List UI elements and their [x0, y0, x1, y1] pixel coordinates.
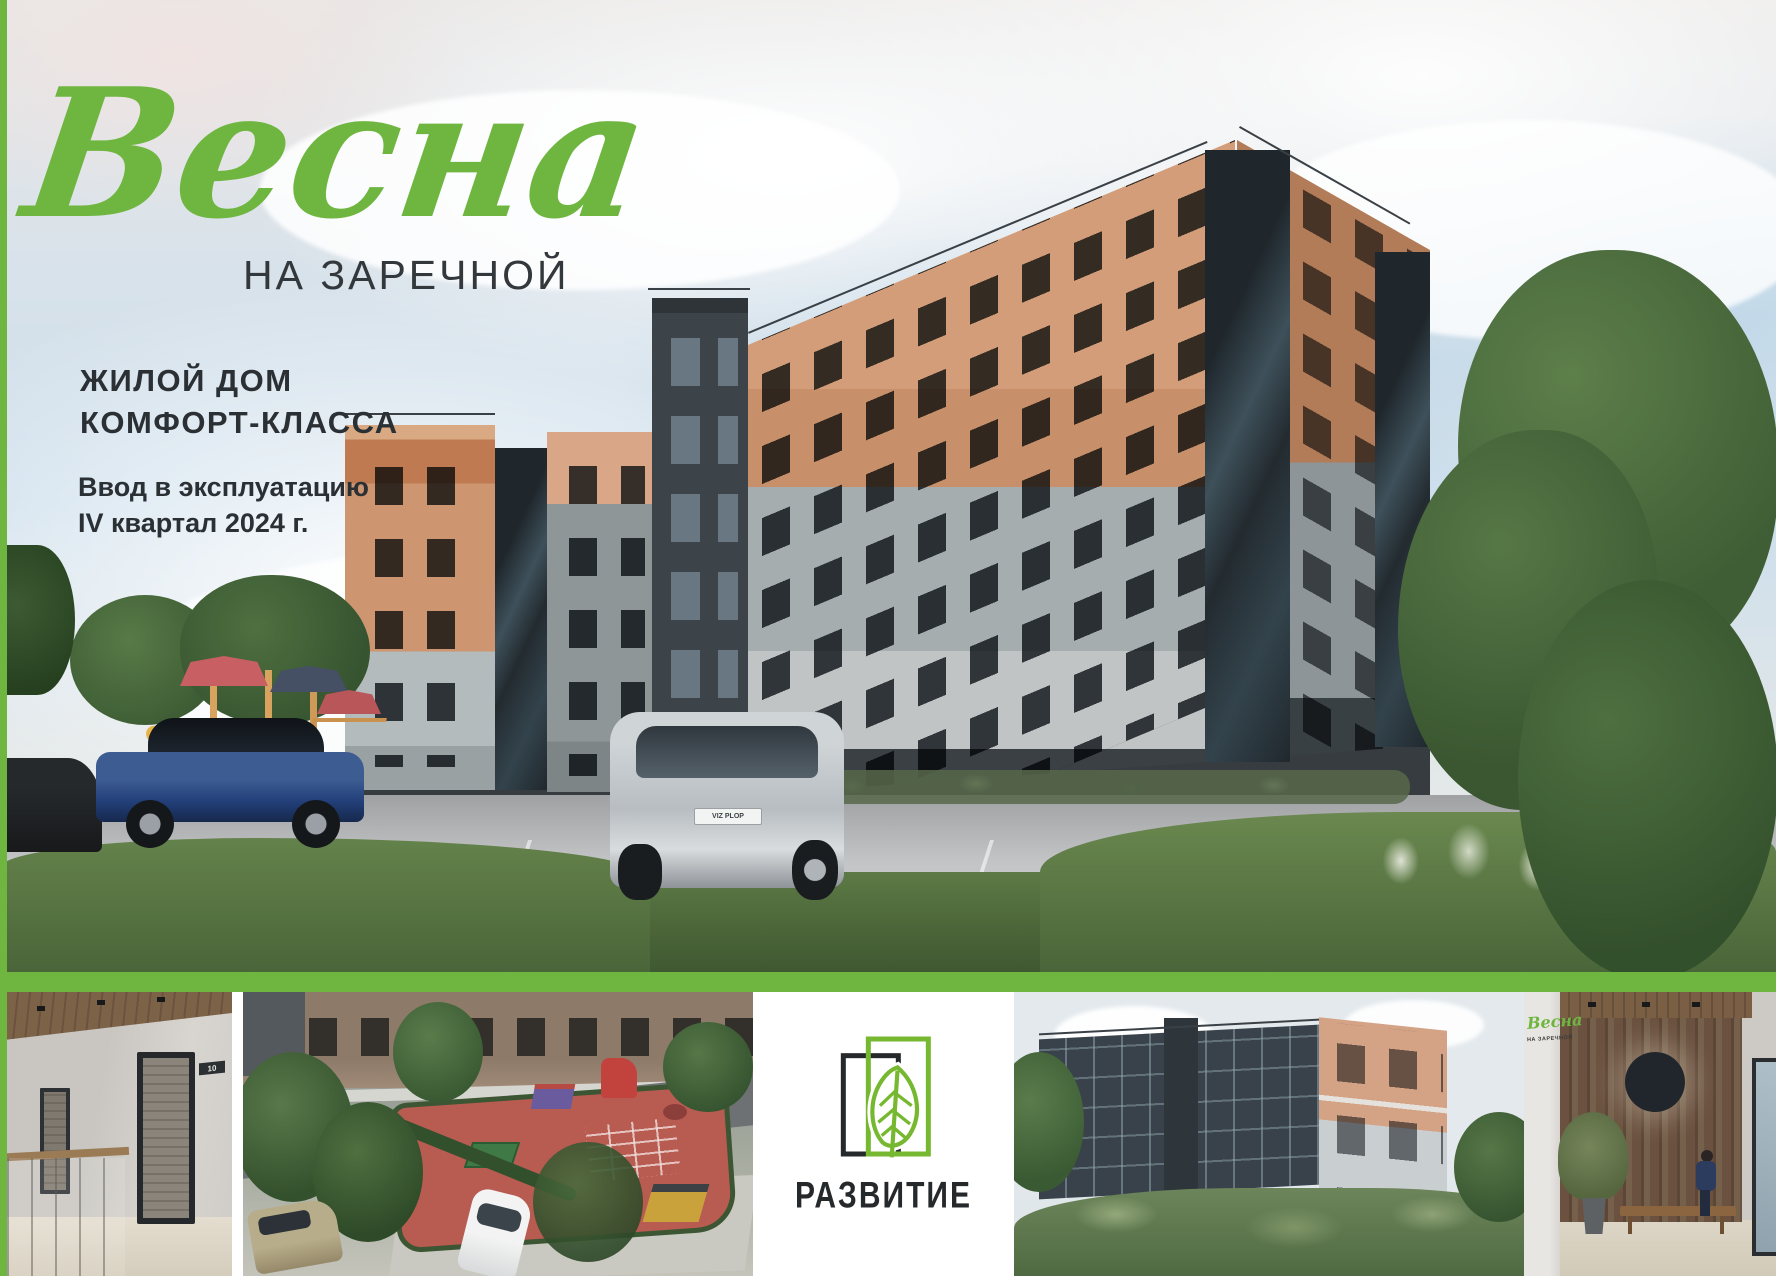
carousel [663, 1104, 687, 1120]
bottom-strip: 10 [0, 992, 1776, 1276]
developer-name: РАЗВИТИЕ [753, 1175, 1014, 1218]
playground-roof [180, 656, 268, 686]
ceiling-spotlight [1692, 1002, 1700, 1007]
green-separator-bar [0, 972, 1776, 992]
delivery-line1: Ввод в эксплуатацию [78, 470, 369, 506]
roof-railing [648, 288, 750, 290]
tree-blob [533, 1142, 643, 1262]
car-windshield [475, 1202, 523, 1234]
sandbox [531, 1084, 575, 1109]
lobby-glass-door [1752, 1058, 1776, 1256]
door-leaf [143, 1058, 189, 1218]
person-torso [1696, 1161, 1716, 1191]
person-legs [1700, 1190, 1710, 1216]
ceiling-spotlight [97, 1000, 105, 1005]
glass-balcony-column [495, 448, 547, 790]
plant-pot [1580, 1198, 1608, 1234]
bench-leg [1720, 1216, 1724, 1234]
project-title-script: Весна [14, 52, 609, 257]
glass-balcony-column [1205, 150, 1290, 762]
lobby-circle-decor [1625, 1052, 1685, 1112]
tree-blob [663, 1022, 753, 1112]
grass-left-patch [0, 838, 650, 973]
lobby-left-wall [1524, 992, 1560, 1276]
plant-foliage [1558, 1112, 1628, 1200]
car-beige [246, 1197, 344, 1275]
green-left-stripe [0, 0, 7, 1276]
car-rear-window [636, 726, 818, 778]
ceiling-spotlight [157, 997, 165, 1002]
tree-blob [393, 1002, 483, 1102]
ceiling-spotlight [37, 1006, 45, 1011]
car-silver: VIZ PLOP [610, 712, 844, 908]
car-blue [96, 718, 364, 846]
slide-red [601, 1058, 637, 1098]
car-wheel [792, 840, 838, 900]
window-grid [662, 322, 738, 772]
sitting-person [1692, 1150, 1722, 1216]
lobby-sign-script: Весна [1527, 1012, 1583, 1032]
window-grid [1323, 1022, 1443, 1203]
tree-blob [1518, 580, 1776, 973]
tree-group-right [1398, 250, 1776, 973]
glass-railing [7, 1158, 125, 1276]
project-title-sub: НА ЗАРЕЧНОЙ [243, 252, 569, 299]
shrub-row [790, 770, 1410, 804]
picnic-table [643, 1184, 710, 1222]
ceiling-spotlight [1642, 1002, 1650, 1007]
door-number-plate: 10 [199, 1061, 225, 1076]
bench-leg [1628, 1216, 1632, 1234]
panel-hallway: 10 [7, 992, 232, 1276]
render-building-right-face [1319, 1017, 1447, 1206]
license-plate-text: VIZ PLOP [712, 813, 744, 820]
car-windows [257, 1209, 311, 1236]
license-plate: VIZ PLOP [694, 808, 762, 825]
playground-roof [270, 666, 348, 692]
potted-plant [1558, 1112, 1628, 1234]
render-grass-foreground [1014, 1188, 1524, 1276]
panel-lobby: Весна НА ЗАРЕЧНОЙ [1524, 992, 1776, 1276]
panel-building-render [1014, 992, 1524, 1276]
door-number: 10 [208, 1063, 217, 1073]
panel-courtyard [243, 992, 753, 1276]
tagline: ЖИЛОЙ ДОМ КОМФОРТ-КЛАССА [80, 360, 399, 443]
developer-logo-mark [835, 1032, 935, 1166]
car-wheel [618, 844, 662, 900]
poster: VIZ PLOP Весна НА ЗАРЕЧНОЙ ЖИЛОЙ ДОМ КОМ… [0, 0, 1776, 1276]
hallway-ceiling-wood [7, 992, 232, 1062]
car-wheel [292, 800, 340, 848]
delivery-info: Ввод в эксплуатацию IV квартал 2024 г. [78, 470, 369, 541]
logo-leaf [872, 1067, 917, 1157]
panel-developer-logo: РАЗВИТИЕ [753, 992, 1014, 1276]
car-dark [0, 758, 102, 852]
tagline-line2: КОМФОРТ-КЛАССА [80, 402, 399, 444]
hero-render: VIZ PLOP Весна НА ЗАРЕЧНОЙ ЖИЛОЙ ДОМ КОМ… [0, 0, 1776, 973]
apartment-door-main [137, 1052, 195, 1224]
tagline-line1: ЖИЛОЙ ДОМ [80, 360, 399, 402]
delivery-line2: IV квартал 2024 г. [78, 506, 369, 542]
render-building-shaft [1164, 1018, 1198, 1190]
ceiling-spotlight [1588, 1002, 1596, 1007]
car-wheel [126, 800, 174, 848]
